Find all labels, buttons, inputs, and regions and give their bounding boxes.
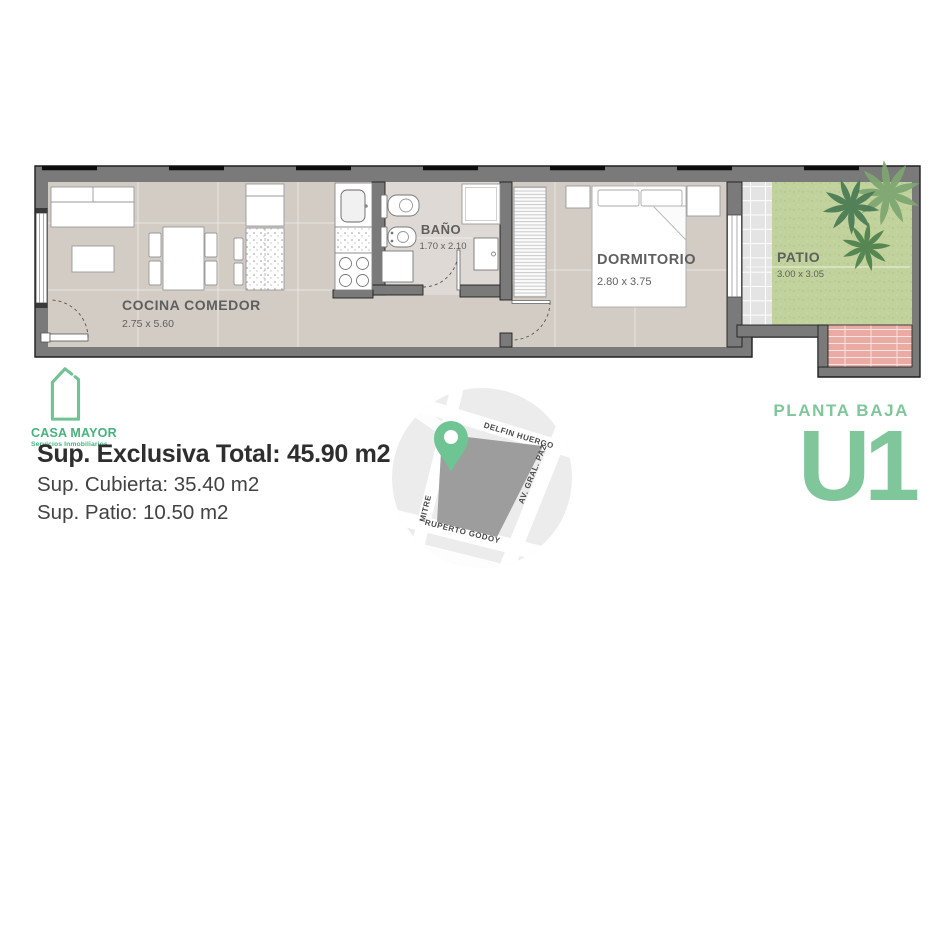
kitchen-cabinet [246,184,284,226]
kitchen-counter [335,183,372,290]
brand-name: CASA MAYOR [31,426,131,440]
toilet [388,195,419,216]
floor-plan: COCINA COMEDOR 2.75 x 5.60 BAÑO 1.70 x 2… [0,0,950,430]
location-map: DELFIN HUERGO AV. GRAL. PAZ MITRE RUPERT… [388,384,576,572]
pillow [641,190,682,206]
patio-tile-strip [742,182,772,325]
room-dims-patio: 3.00 x 3.05 [777,269,824,280]
room-label-dormitorio: DORMITORIO [597,252,696,268]
area-summary: Sup. Exclusiva Total: 45.90 m2 Sup. Cubi… [37,440,390,525]
bidet-base [381,227,387,247]
property-flyer: COCINA COMEDOR 2.75 x 5.60 BAÑO 1.70 x 2… [0,0,950,950]
room-dims-cocina: 2.75 x 5.60 [122,318,174,330]
sofa [51,187,134,227]
chair [205,233,217,257]
room-dims-bano: 1.70 x 2.10 [419,241,466,252]
sink [341,190,365,222]
patio-pink-tiles [823,325,912,367]
patio-door [728,215,742,297]
room-label-bano: BAÑO [421,222,461,237]
bidet [388,227,416,247]
nightstand [687,186,720,216]
window [36,208,48,308]
chair [149,233,161,257]
shower [462,184,500,224]
dining-table [163,227,204,290]
room-label-cocina: COCINA COMEDOR [122,297,261,313]
stool [234,238,243,260]
brand-logo: CASA MAYOR Servicios Inmobiliarios [31,363,131,448]
house-icon [44,363,84,423]
nightstand [566,186,590,208]
bath-cabinet [382,251,413,282]
room-dims-dormitorio: 2.80 x 3.75 [597,276,651,288]
chair [149,261,161,285]
toilet-tank [381,195,387,218]
total-exclusive-area: Sup. Exclusiva Total: 45.90 m2 [37,440,390,469]
pillow [598,190,639,206]
vanity [474,238,498,270]
unit-label: U1 [773,423,914,509]
covered-area: Sup. Cubierta: 35.40 m2 [37,473,390,497]
room-label-patio: PATIO [777,249,820,265]
coffee-table [72,246,114,272]
stool [234,263,243,285]
wardrobe [514,187,546,297]
patio-area: Sup. Patio: 10.50 m2 [37,501,390,525]
chair [205,261,217,285]
unit-block: PLANTA BAJA U1 [773,401,909,509]
